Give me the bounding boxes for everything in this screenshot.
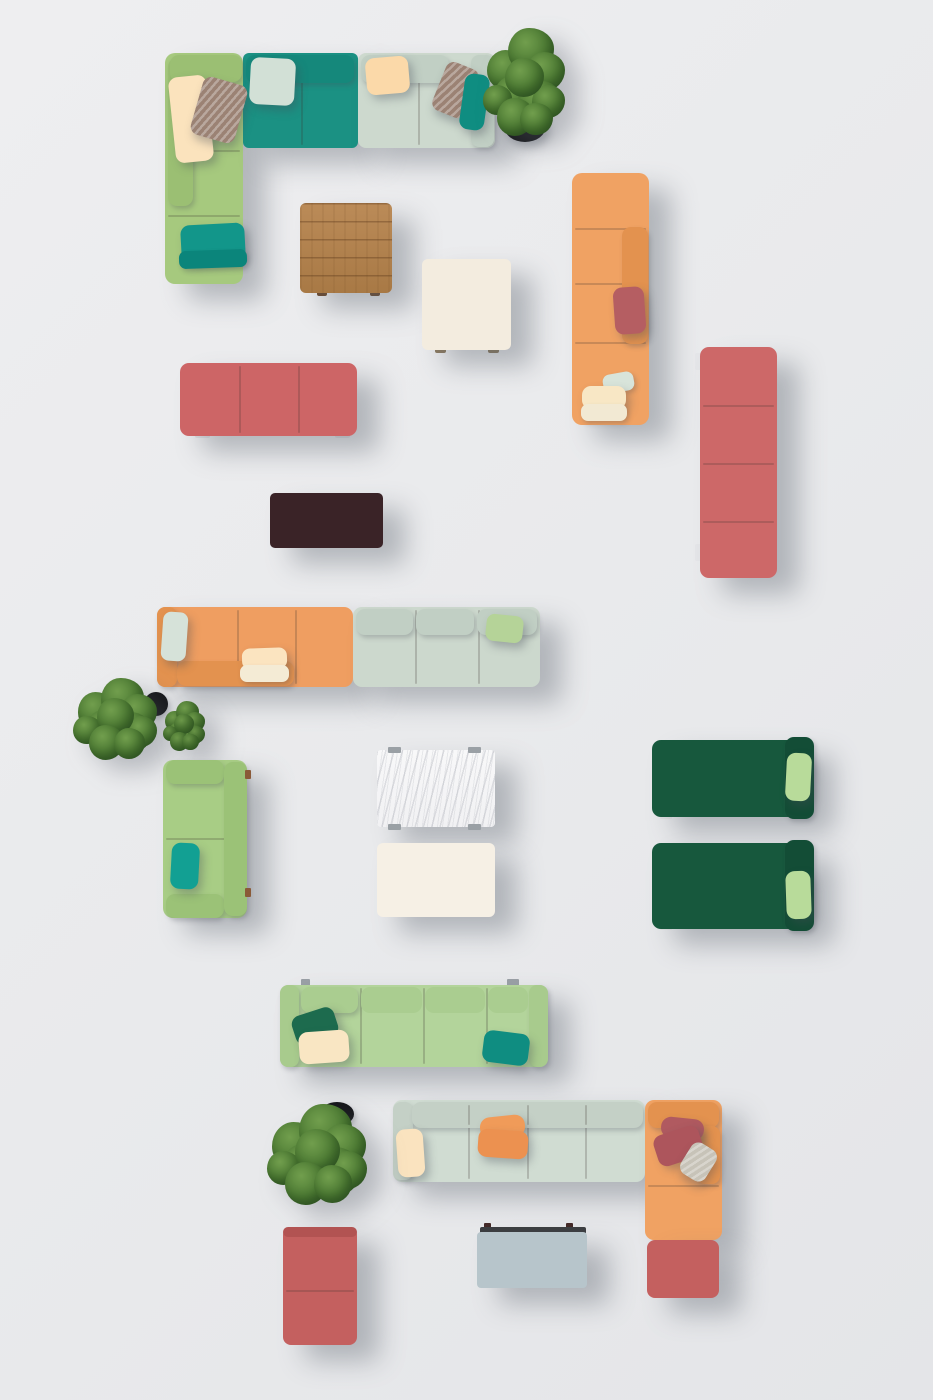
pillow-teal-fold [179, 249, 248, 269]
wood-coffee-table [300, 203, 392, 293]
marble-table-bracket-br [468, 824, 481, 830]
green-long-sofa-armrest-right [529, 985, 548, 1067]
pillow-cream-on-green-sofa [298, 1029, 350, 1064]
green-long-sofa-backrest-c [425, 987, 485, 1013]
pillow-cream-stack-b [581, 404, 627, 421]
marble-table-bracket-tl [388, 747, 401, 753]
plant-foliage-blob [182, 734, 199, 751]
marble-table-bracket-bl [388, 824, 401, 830]
bottom-mint-sofa-backrest-seam [468, 1105, 470, 1125]
plant-foliage-blob [114, 728, 145, 759]
cream-rect-table [377, 843, 495, 917]
pillow-teal-on-green-long-sofa [481, 1029, 531, 1066]
bottom-left-red-module [283, 1227, 357, 1345]
pillow-orange [477, 1128, 529, 1159]
plant-foliage-blob [505, 58, 544, 97]
dark-coffee-table [270, 493, 383, 548]
plant-top [485, 30, 563, 140]
furniture-scene [0, 0, 933, 1400]
coral-bench-4-module-seam [703, 405, 774, 407]
green-sofa-connector-bottom [245, 888, 251, 897]
bottom-mint-sofa-backrest-seam [585, 1105, 587, 1125]
green-long-sofa-backrest-d [488, 987, 528, 1013]
green-sofa-connector-top [245, 770, 251, 779]
marble-table-bracket-tr [468, 747, 481, 753]
plant-foliage-blob [314, 1165, 352, 1203]
coral-bench-4-module-seam [703, 463, 774, 465]
mid-sofa-orange-seats-seam [295, 610, 297, 684]
green-sofa-armrest-bottom [166, 894, 224, 918]
coral-bench-4-module [700, 347, 777, 578]
plant-middle-large [76, 679, 160, 753]
pillow-cream-upright-bottom [395, 1128, 425, 1178]
plant-middle-small [164, 702, 204, 750]
green-sofa-backrest-right [224, 762, 247, 916]
bottom-left-red-module-seam [286, 1290, 354, 1292]
blue-gray-table [477, 1232, 587, 1288]
pillow-cream-stack-bottom [240, 665, 289, 682]
coral-bench-4-module-seam [703, 521, 774, 523]
bottom-mint-sofa-backrest [412, 1102, 643, 1128]
coral-bench-3-module [180, 363, 357, 436]
daybed-2-pillow [785, 871, 812, 920]
pillow-mint-on-teal [249, 57, 296, 106]
coral-bench-3-module-seam [239, 366, 241, 433]
coral-bench-3-module-seam [298, 366, 300, 433]
bottom-left-red-fold [283, 1227, 357, 1237]
bottom-orange-corner-seam [648, 1185, 719, 1187]
green-long-sofa-backrest-b [361, 987, 422, 1013]
plant-bottom [270, 1106, 368, 1196]
sectional-a-green-chaise-seam [168, 215, 240, 217]
pillow-teal-on-green-sofa [170, 842, 200, 889]
pillow-dusty-red [612, 286, 646, 335]
cream-square-table [422, 259, 511, 350]
plant-foliage-blob [520, 103, 553, 136]
mid-sofa-mint-backrest-b [416, 609, 474, 635]
pillow-green-on-mint [485, 613, 525, 644]
daybed-1-pillow [785, 752, 812, 801]
bottom-mint-sofa-backrest-seam [527, 1105, 529, 1125]
mid-sofa-mint-backrest-a [356, 609, 413, 635]
green-sofa-armrest-top [166, 760, 224, 784]
pillow-peach [364, 55, 410, 96]
bottom-right-red-ottoman [647, 1240, 719, 1298]
pillow-mint-on-armrest [160, 611, 188, 662]
marble-coffee-table [377, 750, 495, 827]
